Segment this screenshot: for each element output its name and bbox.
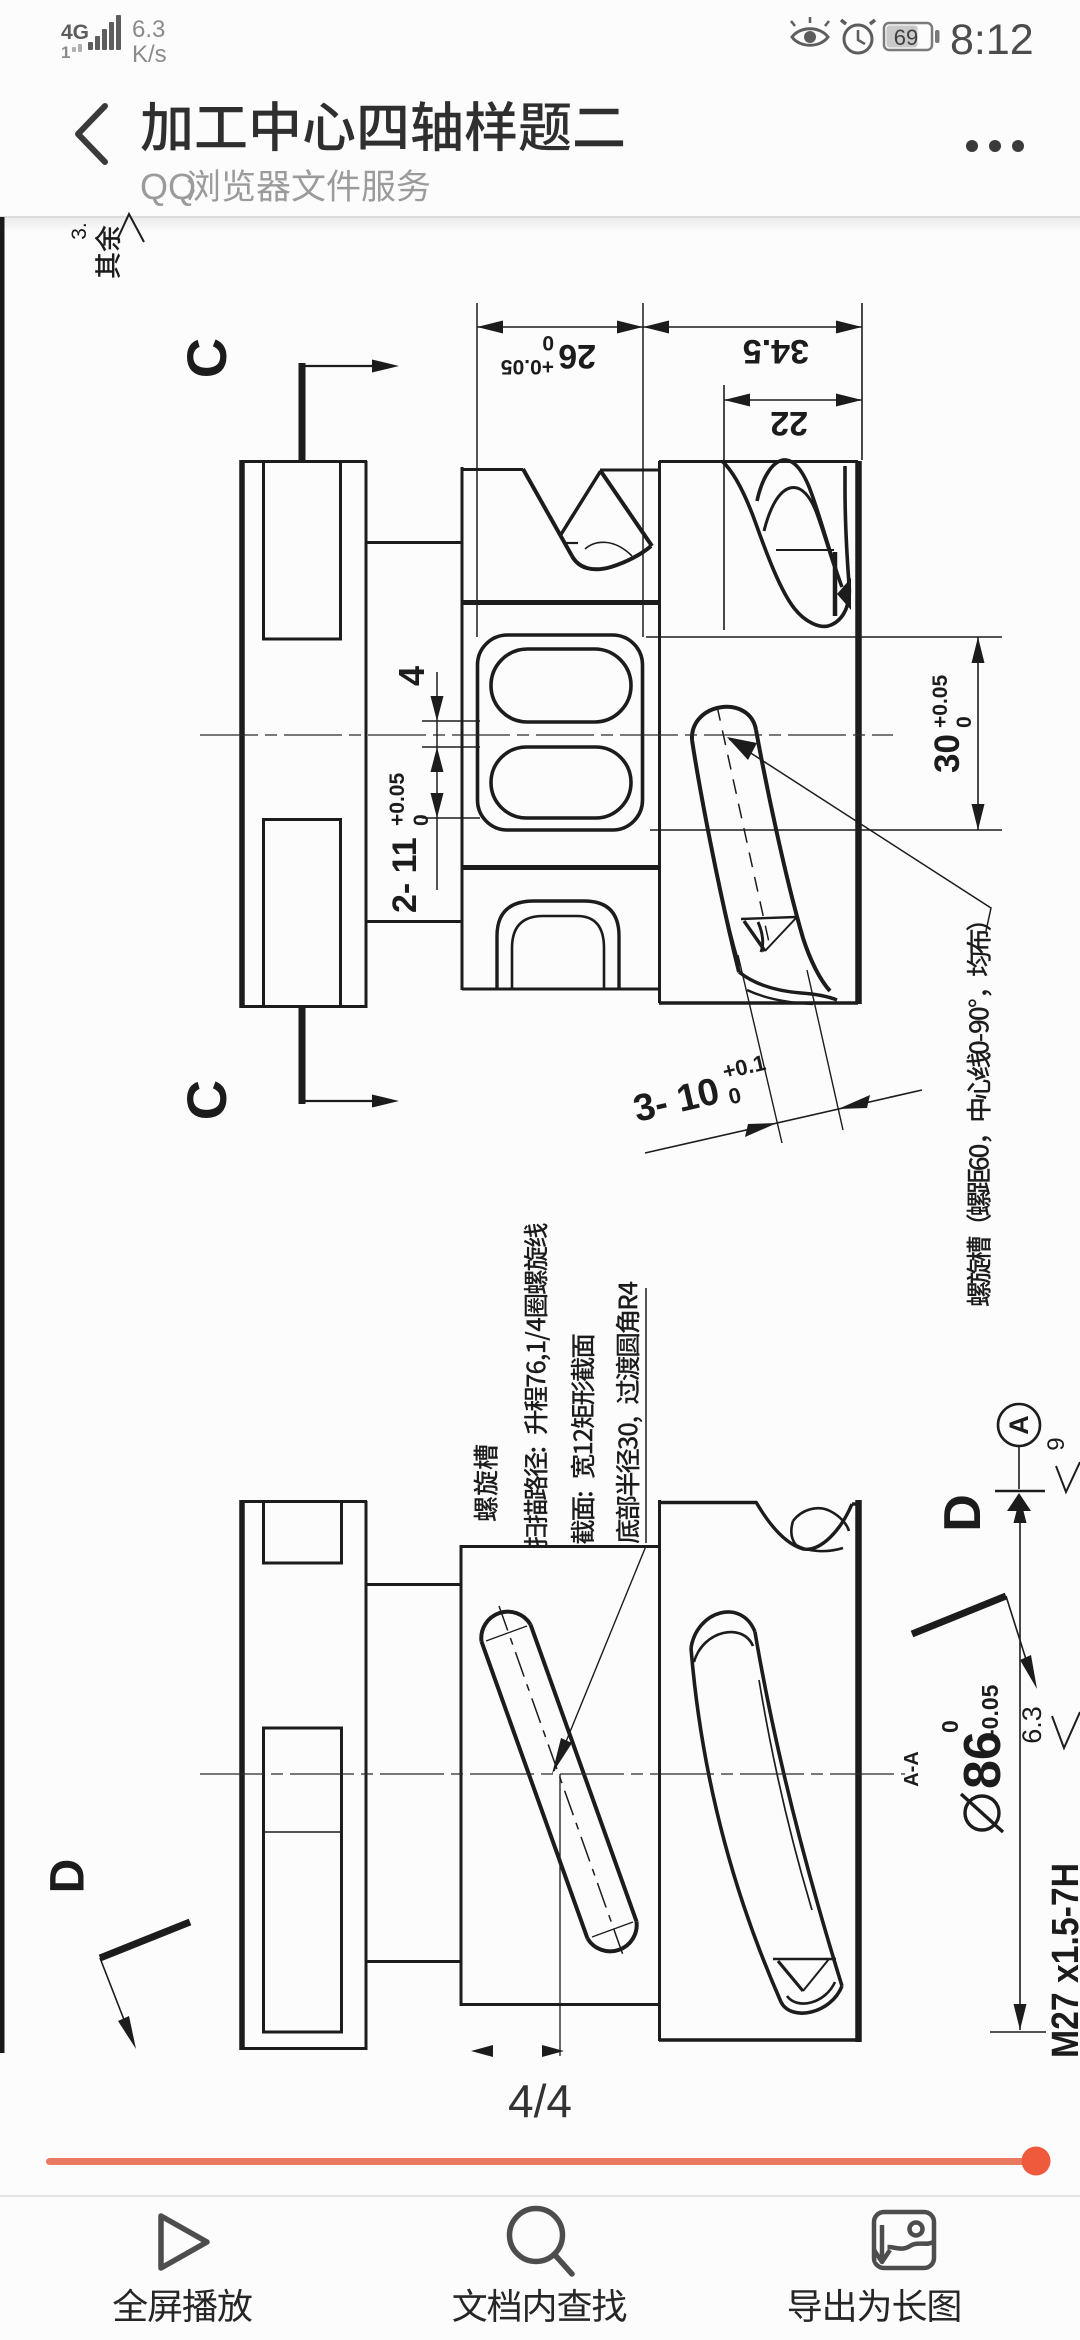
svg-text:D: D xyxy=(42,1859,95,1894)
svg-text:0: 0 xyxy=(937,1720,963,1733)
svg-text:22: 22 xyxy=(770,404,808,442)
svg-text:QQ: QQ xyxy=(140,166,196,207)
svg-text:1: 1 xyxy=(61,43,70,62)
svg-text:0: 0 xyxy=(953,716,976,728)
svg-text:86: 86 xyxy=(954,1731,1012,1789)
svg-text:30: 30 xyxy=(928,734,967,773)
svg-text:M27 x1.5-7H: M27 x1.5-7H xyxy=(1045,1863,1080,2058)
svg-text:C: C xyxy=(175,1080,238,1120)
svg-text:9: 9 xyxy=(1043,1437,1070,1450)
svg-text:4G: 4G xyxy=(61,21,89,44)
svg-text:3.: 3. xyxy=(68,222,91,240)
svg-text:6.3: 6.3 xyxy=(132,16,165,43)
svg-text:0: 0 xyxy=(410,814,433,826)
svg-text:+0.05: +0.05 xyxy=(929,675,952,728)
svg-text:+0.05: +0.05 xyxy=(501,355,554,378)
svg-text:A: A xyxy=(1004,1415,1034,1435)
svg-text:6.3: 6.3 xyxy=(1017,1706,1047,1744)
svg-text:0: 0 xyxy=(542,331,554,354)
svg-text:3- 10: 3- 10 xyxy=(630,1070,724,1130)
svg-text:+0.1: +0.1 xyxy=(720,1050,768,1084)
svg-text:4/4: 4/4 xyxy=(508,2075,572,2127)
svg-text:0: 0 xyxy=(726,1082,744,1109)
svg-text:4: 4 xyxy=(391,666,432,686)
svg-text:2- 11: 2- 11 xyxy=(386,837,424,913)
svg-text:26: 26 xyxy=(558,337,596,375)
svg-text:D: D xyxy=(934,1494,992,1532)
svg-text:A-A: A-A xyxy=(901,1751,923,1787)
svg-text:C: C xyxy=(175,338,238,378)
svg-text:K/s: K/s xyxy=(132,41,167,68)
svg-text:+0.05: +0.05 xyxy=(386,773,409,826)
svg-text:8:12: 8:12 xyxy=(950,16,1034,64)
svg-text:34.5: 34.5 xyxy=(743,332,809,370)
svg-text:69: 69 xyxy=(894,25,918,50)
svg-text:-0.05: -0.05 xyxy=(977,1684,1003,1737)
